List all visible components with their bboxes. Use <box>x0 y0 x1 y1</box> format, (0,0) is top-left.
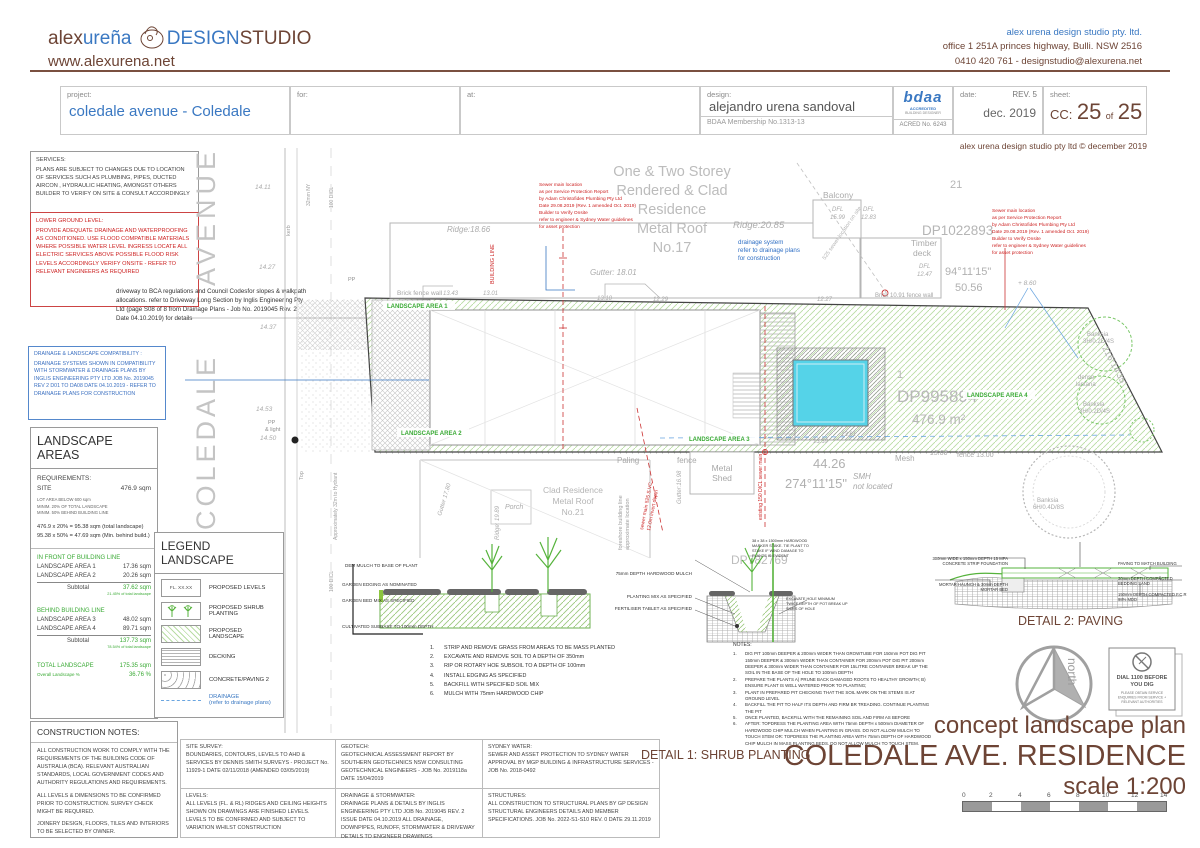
scale-tick-2: 2 <box>989 792 993 799</box>
shrub-left-label-1: DEM MULCH TO BASE OF PLANT <box>345 563 437 569</box>
area3-label: LANDSCAPE AREA 3 <box>37 617 96 623</box>
sewer-note-left-4: Date 29.08.2019 (Rev. 1 amended Oct. 201… <box>539 203 636 209</box>
total-value: 175.35 sqm <box>120 663 151 669</box>
dfl-a-value: 15.99 <box>830 215 846 221</box>
shrub-plant-2 <box>536 537 561 592</box>
sheet-number: 25 <box>1077 99 1101 124</box>
project-label: project: <box>61 87 289 99</box>
lantana-label-2: lantana <box>1076 382 1096 388</box>
dp1022893-label: DP1022893 <box>922 223 993 238</box>
banksia-2-label: Banksia <box>1083 402 1105 408</box>
project-name: coledale avenue - Coledale <box>61 99 289 120</box>
legend-landscape-label: PROPOSED LANDSCAPE <box>209 628 277 640</box>
overall-label: Overall Landscape % <box>37 672 80 678</box>
level-1453: 14.53 <box>256 406 273 413</box>
dial-before-you-dig-badge: DIAL 1100 BEFORE YOU DIG PLEASE OBTAIN S… <box>1106 646 1188 722</box>
smh-label-2: not located <box>853 482 893 491</box>
legend-item-concrete: CONCRETE/PAVING 2 <box>161 671 277 689</box>
dim-bottom-length: 44.26 <box>813 456 846 471</box>
balcony-label: Balcony <box>823 190 854 200</box>
legend-title: LEGEND LANDSCAPE <box>155 533 283 574</box>
scale-bar: 0 2 4 6 8 10 12 14 <box>962 792 1192 812</box>
dim-top-bearing: 94°11'15" <box>945 266 991 278</box>
pp-light-label-1: PP <box>268 420 276 426</box>
titleblock-project-cell: project: coledale avenue - Coledale <box>60 86 290 135</box>
driveway-crossing <box>298 300 372 350</box>
banksia-3-label: Banksia <box>1037 498 1059 504</box>
dial-line-3: PLEASE OBTAIN SERVICE <box>1121 691 1164 695</box>
shrub-left-label-3: GARDEN BED MIX AS SPECIFIED <box>342 598 434 603</box>
drainage-system-note-2: refer to drainage plans <box>738 247 800 254</box>
lower-ground-title: LOWER GROUND LEVEL: <box>36 217 193 225</box>
site-area-label: 476.9 m² <box>912 412 966 427</box>
dial-line-4: ENQUIRIES FROM SERVICE + <box>1118 696 1166 700</box>
sewer-note-right-1: Sewer main location <box>992 208 1036 214</box>
dfl-b-label: DFL <box>863 207 874 213</box>
area2-label: LANDSCAPE AREA 2 <box>37 573 96 579</box>
level-1361: 13.61 <box>841 432 856 438</box>
residence17-label-2: Rendered & Clad <box>616 183 727 199</box>
mulch-mound-4 <box>547 589 587 595</box>
residence21-label-2: Metal Roof <box>552 496 594 506</box>
stairs <box>733 373 760 418</box>
date-label: date: <box>954 87 977 99</box>
paving-right-label-2: 30mm DEPTH COMPACTED BEDDING SAND <box>1118 576 1190 587</box>
site-value: 476.9 sqm <box>121 485 151 492</box>
sewer-note-left-3: by Adam Christofides Plumbing Pty Ltd <box>539 196 622 202</box>
drainage-system-note-3: for construction <box>738 255 781 262</box>
behind-subtotal-label: Subtotal <box>67 638 89 644</box>
shrub-steps-list: 1.STRIP AND REMOVE GRASS FROM AREAS TO B… <box>430 644 650 699</box>
area1-label: LANDSCAPE AREA 1 <box>37 564 96 570</box>
titleblock-for-cell: for: <box>290 86 460 135</box>
bdaa-membership: BDAA Membership No.1313-13 <box>701 116 892 126</box>
sewer-note-left-5: Builder to Verify Onsite <box>539 210 588 216</box>
sewer-note-right-5: Builder to Verify Onsite <box>992 236 1041 242</box>
banksia-2-size: 3H/0.2D/4S <box>1079 409 1110 415</box>
stormwater-note: DRAINAGE & STORMWATER: DRAINAGE PLANS & … <box>335 788 483 838</box>
residence21-label-3: No.21 <box>562 507 585 517</box>
geotech-note: GEOTECH: GEOTECHNICAL ASSESSMENT REPORT … <box>335 739 483 789</box>
pot-label-fertiliser: FERTILISER TABLET AS SPECIFIED <box>597 606 692 611</box>
acred-number: ACRED No. 6243 <box>894 119 952 128</box>
drainage-compatibility-note: DRAINAGE & LANDSCAPE COMPATIBILITY : DRA… <box>28 346 166 420</box>
fence-word-label: fence <box>677 456 697 465</box>
titleblock-design-cell: design: alejandro urena sandoval BDAA Me… <box>700 86 893 135</box>
mesh-label: Mesh <box>895 454 915 463</box>
paving-right-label-1: PAVING TO MATCH BUILDING <box>1118 561 1190 566</box>
scale-tick-0: 0 <box>962 792 966 799</box>
scale-tick-14: 14 <box>1160 792 1167 799</box>
fertiliser-tablet <box>735 624 739 628</box>
tree-banksia-3 <box>1023 446 1115 538</box>
services-title: SERVICES: <box>36 156 193 164</box>
residence21-label-1: Clad Residence <box>543 485 603 495</box>
lantana-label-1: dense <box>1078 375 1095 381</box>
hydrant-distance-label: Approximately 32m to Hydrant <box>333 472 339 540</box>
scale-tick-8: 8 <box>1076 792 1080 799</box>
fence-1300-label: fence 13.00 <box>957 452 994 459</box>
company-address: office 1 251A princes highway, Bulli. NS… <box>943 40 1142 54</box>
landscape-areas-title: LANDSCAPE AREAS <box>31 428 157 469</box>
lot-note-2: MINIM. 20% OF TOTAL LANDSCAPE <box>37 504 151 511</box>
dial-line-5: RELEVANT AUTHORITIES <box>1121 700 1163 704</box>
studio-contact-block: alex urena design studio pty. ltd. offic… <box>943 26 1142 69</box>
area1-value: 17.36 sqm <box>123 564 151 570</box>
step-1: STRIP AND REMOVE GRASS FROM AREAS TO BE … <box>444 645 615 651</box>
level-1427: 14.27 <box>259 264 276 271</box>
front-header: IN FRONT OF BUILDING LINE <box>37 555 151 561</box>
levels-swatch: FL. XX.XX <box>161 579 201 597</box>
titleblock-date-cell: date: REV. 5 dec. 2019 <box>953 86 1043 135</box>
power-pole-symbol <box>292 437 299 444</box>
site-survey-body: BOUNDARIES, CONTOURS, LEVELS TO AHD & SE… <box>186 751 330 775</box>
services-body: PLANS ARE SUBJECT TO CHANGES DUE TO LOCA… <box>36 166 193 198</box>
scale-bar-segments <box>962 801 1167 812</box>
building-line-label: BUILDING LINE <box>490 244 496 284</box>
behind-header: BEHIND BUILDING LINE <box>37 608 151 614</box>
brick-fence-right-label: Brick 10.91 fence wall <box>875 293 933 299</box>
titleblock-at-cell: at: <box>460 86 700 135</box>
sewer-note-right-3: by Adam Christofides Plumbing Pty Ltd <box>992 222 1075 228</box>
stormwater-title: DRAINAGE & STORMWATER: <box>341 792 477 800</box>
level-1310: 13.10 <box>597 296 613 302</box>
landscape-areas-panel: LANDSCAPE AREAS REQUIREMENTS: SITE476.9 … <box>30 427 158 719</box>
level-1343: 13.43 <box>443 291 459 297</box>
north-label: north <box>1065 658 1079 685</box>
studio-logo: alexureña DESIGNSTUDIO www.alexurena.net <box>48 22 311 70</box>
sewer-150dicl-label: existing 150 DICL sewer main <box>758 454 764 520</box>
pp-label: PP <box>348 277 356 283</box>
landscape-calc-1: 476.9 x 20% = 95.38 sqm (total landscape… <box>37 523 151 532</box>
area4-label: LANDSCAPE AREA 4 <box>37 626 96 632</box>
levels-note: LEVELS: ALL LEVELS (FL. & RL) RIDGES AND… <box>180 788 336 838</box>
behind-subtotal-pct: 78.54% of total landscape <box>31 645 151 649</box>
legend-decking-label: DECKING <box>209 654 235 660</box>
construction-note-2: ALL LEVELS & DIMENSIONS TO BE CONFIRMED … <box>37 792 171 816</box>
level-1229: 12.29 <box>653 297 669 303</box>
sewer-note-right-4: Date 29.08.2019 (Rev. 1 amended Oct. 201… <box>992 229 1089 235</box>
banksia-1-label: Banksia <box>1087 332 1109 338</box>
levels-title: LEVELS: <box>186 792 330 800</box>
requirements-label: REQUIREMENTS: <box>37 475 151 482</box>
logo-studio: STUDIO <box>240 28 312 49</box>
paving-right-label-3: 150mm DEPTH COMPACTED F.C.R 98% MDD <box>1118 592 1190 603</box>
landscape-area-3-tag: LANDSCAPE AREA 3 <box>689 437 750 443</box>
legend-item-decking: DECKING <box>161 648 277 666</box>
note-1: DIG PIT 100mm DEEPER & 200mm WIDER THAN … <box>745 651 933 677</box>
drawing-title-line1: concept landscape plan <box>784 712 1186 740</box>
foreshore-line-label: foreshore building line <box>618 495 624 550</box>
shrub-plant-1 <box>482 544 502 592</box>
drainage-compat-title: DRAINAGE & LANDSCAPE COMPATIBILITY : <box>34 351 160 359</box>
legend-levels-label: PROPOSED LEVELS <box>209 585 265 591</box>
mulch-mound-1 <box>383 589 441 595</box>
residence17-label-4: Metal Roof <box>637 221 708 237</box>
gutter-1698-label: Gutter:16.98 <box>677 470 683 504</box>
mulch-mound-2 <box>447 589 501 595</box>
lower-ground-body: PROVIDE ADEQUATE DRAINAGE AND WATERPROOF… <box>36 227 193 276</box>
sewer-note-left-2: as per Service Protection Report <box>539 189 609 195</box>
step-6: MULCH WITH 75mm HARDWOOD CHIP <box>444 691 543 697</box>
lot-note-3: MINIM. 50% BEHIND BUILDING LINE <box>37 510 151 517</box>
levels-body: ALL LEVELS (FL. & RL) RIDGES AND CEILING… <box>186 800 330 832</box>
revision: REV. 5 <box>1012 87 1042 99</box>
behind-subtotal-value: 137.73 sqm <box>120 638 151 644</box>
driveway-hatch <box>372 300 430 450</box>
structures-note: STRUCTURES: ALL CONSTRUCTION TO STRUCTUR… <box>482 788 660 838</box>
shrub-left-label-2: GARDEN EDGING AS NOMINATED <box>342 582 434 587</box>
sewer-note-left-6: refer to engineer & Sydney Water guideli… <box>539 217 634 223</box>
area2-value: 20.26 sqm <box>123 573 151 579</box>
logo-design: DESIGN <box>167 28 240 49</box>
metal-shed-label-2: Shed <box>712 473 732 483</box>
sheet-cc: CC: <box>1050 107 1072 122</box>
geotech-body: GEOTECHNICAL ASSESSMENT REPORT BY SOUTHE… <box>341 751 477 783</box>
sheet-date: dec. 2019 <box>954 99 1042 120</box>
step-2: EXCAVATE AND REMOVE SOIL TO A DEPTH OF 3… <box>444 654 584 660</box>
company-contact: 0410 420 761 - designstudio@alexurena.ne… <box>943 55 1142 69</box>
mesh-length: 13.06 <box>930 450 948 457</box>
ridge-1989-label: Ridge: 19.89 <box>495 505 501 540</box>
landscape-area-4-tag: LANDSCAPE AREA 4 <box>967 393 1028 399</box>
drainage-system-note-1: drainage system <box>738 239 783 246</box>
titleblock-sheet-cell: sheet: CC: 25 of 25 <box>1043 86 1147 135</box>
metal-shed-label-1: Metal <box>712 463 733 473</box>
concrete-swatch <box>161 671 201 689</box>
construction-notes-panel: CONSTRUCTION NOTES: ALL CONSTRUCTION WOR… <box>30 721 178 838</box>
for-label: for: <box>291 87 459 99</box>
stormwater-body: DRAINAGE PLANS & DETAILS BY INGLIS ENGIN… <box>341 800 477 841</box>
landscape-area-1-tag: LANDSCAPE AREA 1 <box>387 304 448 310</box>
scale-tick-10: 10 <box>1102 792 1109 799</box>
lot-1-label: 1 <box>897 369 903 381</box>
level-1301: 13.01 <box>483 291 498 297</box>
pp-light-label-2: & light <box>265 427 281 433</box>
sewer-note-left-1: Sewer main location <box>539 182 583 188</box>
lot-note-1: LOT AREA BELOW 600 sqm <box>37 497 151 504</box>
shrub-swatch-icon <box>161 602 201 620</box>
legend-item-levels: FL. XX.XX PROPOSED LEVELS <box>161 579 277 597</box>
sheet-of: of <box>1106 111 1114 121</box>
logo-alex: alex <box>48 28 83 49</box>
residence17-label-5: No.17 <box>653 240 692 256</box>
step-5: BACKFILL WITH SPECIFIED SOIL MIX <box>444 682 539 688</box>
dfl-c-value: 12.47 <box>917 272 933 278</box>
level-1437: 14.37 <box>260 324 277 331</box>
total-label: TOTAL LANDSCAPE <box>37 663 94 669</box>
timber-deck-label-1: Timber <box>911 238 937 248</box>
decking-swatch <box>161 648 201 666</box>
legend-drainage-sub: (refer to drainage plans) <box>209 700 271 706</box>
mulch-left <box>709 591 735 596</box>
logo-urena: ureña <box>83 28 132 49</box>
legend-panel: LEGEND LANDSCAPE FL. XX.XX PROPOSED LEVE… <box>154 532 284 718</box>
dfl-b-value: 12.83 <box>861 215 877 221</box>
level-860: + 8.60 <box>1018 280 1037 287</box>
titleblock-bdaa-cell: bdaa ACCREDITED BUILDING DESIGNER ACRED … <box>893 86 953 135</box>
foreshore-approx-label: approximate location <box>625 498 631 550</box>
landscape-plan-sheet: { "header": { "logo_alex": "alex", "logo… <box>0 0 1200 848</box>
level-1339: 13.39 <box>813 439 829 445</box>
excavate-label: EXCAVATE HOLE MINIMUM TWICE DEPTH OF POT… <box>786 597 848 612</box>
scale-tick-4: 4 <box>1018 792 1022 799</box>
sewer-note-right-7: for asset protection <box>992 250 1033 256</box>
brick-fence-left-label: Brick fence wall <box>397 290 443 297</box>
neighbour-residence-17 <box>390 223 860 298</box>
website-link[interactable]: www.alexurena.net <box>48 53 311 70</box>
stake-label: 38 x 38 x 1500mm HARDWOOD MARKER STAKE. … <box>752 539 818 559</box>
sydney-water-body: SEWER AND ASSET PROTECTION TO SYDNEY WAT… <box>488 751 654 775</box>
studio-scribble-icon <box>137 22 167 52</box>
legend-concrete-label: CONCRETE/PAVING 2 <box>209 677 269 683</box>
gutter-1801-label: Gutter: 18.01 <box>590 268 637 277</box>
level-1227: 12.27 <box>817 297 833 303</box>
drainage-swatch <box>161 700 201 701</box>
scale-tick-6: 6 <box>1047 792 1051 799</box>
dial-line-2: YOU DIG <box>1130 682 1153 688</box>
sheet-label: sheet: <box>1044 87 1146 99</box>
legend-item-shrub: PROPOSED SHRUB PLANTING <box>161 602 277 620</box>
sewer-note-right-6: refer to engineer & Sydney Water guideli… <box>992 243 1087 249</box>
residence17-label-3: Residence <box>638 202 707 218</box>
site-label: SITE <box>37 485 51 492</box>
step-4: INSTALL EDGING AS SPECIFIED <box>444 673 526 679</box>
geotech-title: GEOTECH: <box>341 743 477 751</box>
dial-line-1: DIAL 1100 BEFORE <box>1117 675 1168 681</box>
area3-value: 48.02 sqm <box>123 617 151 623</box>
landscape-area-2-tag: LANDSCAPE AREA 2 <box>401 431 462 437</box>
site-survey-note: SITE SURVEY: BOUNDARIES, CONTOURS, LEVEL… <box>180 739 336 789</box>
pool <box>793 360 868 426</box>
construction-note-3: JOINERY DESIGN, FLOORS, TILES AND INTERI… <box>37 820 171 836</box>
bdaa-logo: bdaa <box>894 89 952 106</box>
smh-label-1: SMH <box>853 472 871 481</box>
landscape-calc-2: 95.38 x 50% = 47.69 sqm (Min. behind bui… <box>37 532 151 541</box>
company-name: alex urena design studio pty. ltd. <box>943 26 1142 40</box>
level-1411: 14.11 <box>255 184 271 191</box>
design-label: design: <box>701 87 892 99</box>
structures-body: ALL CONSTRUCTION TO STRUCTURAL PLANS BY … <box>488 800 654 824</box>
legend-item-landscape: PROPOSED LANDSCAPE <box>161 625 277 643</box>
scale-tick-12: 12 <box>1131 792 1138 799</box>
structures-title: STRUCTURES: <box>488 792 654 800</box>
at-label: at: <box>461 87 699 99</box>
services-note: SERVICES: PLANS ARE SUBJECT TO CHANGES D… <box>30 151 199 213</box>
drawing-title-block: concept landscape plan COLEDALE AVE. RES… <box>784 712 1186 801</box>
porch-label: Porch <box>505 504 523 511</box>
residence17-label-1: One & Two Storey <box>613 164 731 180</box>
bdaa-building-designer: BUILDING DESIGNER <box>894 111 952 115</box>
ridge-1866-label: Ridge:18.66 <box>447 225 491 234</box>
landscape-swatch <box>161 625 201 643</box>
shrub-left-label-4: CULTIVATED SUBBASE TO 100mm DEPTH <box>342 624 434 630</box>
front-subtotal-label: Subtotal <box>67 585 89 591</box>
banksia-3-size: 6H/0.4D/8S <box>1033 505 1064 511</box>
kerb-label: kerb <box>286 225 292 236</box>
area4-value: 89.71 sqm <box>123 626 151 632</box>
paving-left-label-2: MORTAR HAUNCH & 30mm DEPTH MORTAR BED <box>930 582 1008 593</box>
header-rule <box>30 70 1170 72</box>
timber-deck-label-2: deck <box>913 248 932 258</box>
construction-note-1: ALL CONSTRUCTION WORK TO COMPLY WITH THE… <box>37 747 171 788</box>
sydney-water-note: SYDNEY WATER: SEWER AND ASSET PROTECTION… <box>482 739 660 789</box>
sewer-note-left-7: for asset protection <box>539 224 580 230</box>
sydney-water-title: SYDNEY WATER: <box>488 743 654 751</box>
front-subtotal-pct: 21.45% of total landscape <box>31 592 151 596</box>
lot-21-label: 21 <box>950 179 962 191</box>
level-1450: 14.50 <box>260 435 277 442</box>
banksia-1-size: 3H/0.2D/4S <box>1083 339 1114 345</box>
pot-label-mix: PLANTING MIX AS SPECIFIED <box>607 594 692 599</box>
designer-name: alejandro urena sandoval <box>701 99 892 116</box>
dim-bottom-bearing: 274°11'15" <box>785 476 847 491</box>
notes-title: NOTES: <box>733 642 933 649</box>
overall-value: 36.76 % <box>129 672 151 678</box>
detail-2-title: DETAIL 2: PAVING <box>1018 614 1123 628</box>
drainage-compat-body: DRAINAGE SYSTEMS SHOWN IN COMPATIBILITY … <box>34 361 160 399</box>
front-subtotal-value: 37.62 sqm <box>123 585 151 591</box>
legend-shrub-label: PROPOSED SHRUB PLANTING <box>209 605 277 617</box>
paving-left-label-1: 300mm WIDE x 150mm DEPTH 15 MPA CONCRETE… <box>930 556 1008 567</box>
street-name-avenue: AVENUE <box>191 148 221 286</box>
tree-banksia-3-inner <box>1033 456 1105 528</box>
sheet-total: 25 <box>1118 99 1142 124</box>
site-survey-title: SITE SURVEY: <box>186 743 330 751</box>
gutter-1780-label: Gutter 17.80 <box>437 482 453 516</box>
ridge-2085-label: Ridge:20.85 <box>733 220 785 231</box>
sewer-note-right-2: as per Service Protection Report <box>992 215 1062 221</box>
watermain-32ny-label: 32mm NY <box>306 183 312 206</box>
note-3: PLANT IN PREPARED PIT CHECKING THAT THE … <box>745 690 933 703</box>
construction-notes-title: CONSTRUCTION NOTES: <box>31 722 177 743</box>
dfl-c-label: DFL <box>919 264 930 270</box>
dfl-a-label: DFL <box>832 207 843 213</box>
step-3: RIP OR ROTARY HOE SUBSOIL TO A DEPTH OF … <box>444 663 585 669</box>
drawing-title-line2: COLEDALE AVE. RESIDENCE <box>784 740 1186 773</box>
note-2: PREPARE THE PLANTS A) PRUNE BACK DAMAGED… <box>745 677 933 690</box>
dicl-100-label-top: 100 DICL <box>329 187 335 208</box>
top-label: Top <box>299 471 305 480</box>
legend-item-drainage: DRAINAGE(refer to drainage plans) <box>161 694 277 706</box>
mulch-mound-3 <box>505 589 539 595</box>
pot-label-mulch: 75mm DEPTH HARDWOOD MULCH <box>592 571 692 576</box>
dim-top-length: 50.56 <box>955 282 983 294</box>
paling-label: Paling <box>617 456 639 465</box>
